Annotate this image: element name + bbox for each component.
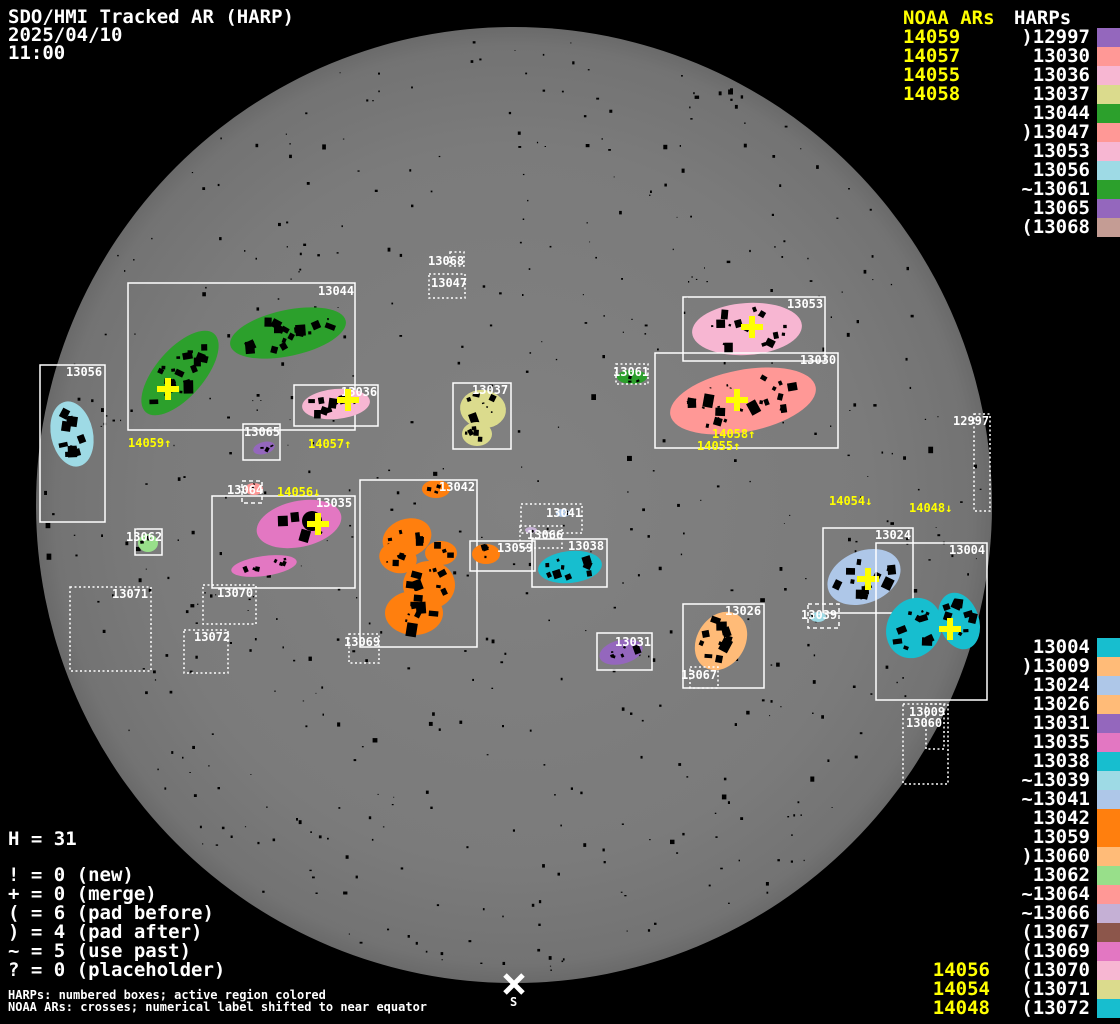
harp-color-swatch (1097, 752, 1120, 771)
harp-box-label: 13030 (800, 353, 836, 367)
harps-top-list: )1299713030130361303713044)1304713053130… (1000, 28, 1120, 237)
harp-color-swatch (1097, 85, 1120, 104)
harp-color-swatch (1097, 142, 1120, 161)
harp-box-label: 13059 (497, 541, 533, 555)
harp-color-swatch (1097, 104, 1120, 123)
harp-box-label: 13009 (909, 705, 945, 719)
harp-box-label: 13062 (126, 530, 162, 544)
harp-count: H = 31 (8, 830, 77, 849)
harp-number: (13068 (1000, 218, 1097, 237)
harp-box-label: 13069 (344, 635, 380, 649)
footnotes: HARPs: numbered boxes; active region col… (8, 989, 427, 1013)
harp-color-swatch (1097, 866, 1120, 885)
harp-list-item: (13072 (1000, 999, 1120, 1018)
legend-line-placeholder: ? = 0 (placeholder) (8, 961, 225, 980)
harp-box-label: 13041 (546, 506, 582, 520)
south-pole-label: S (510, 995, 517, 1009)
harp-box-label: 13031 (615, 635, 651, 649)
noaa-ar-number: 14048 (900, 999, 990, 1018)
harp-box-label: 13024 (875, 528, 911, 542)
harp-box-label: 13026 (725, 604, 761, 618)
harp-color-swatch (1097, 180, 1120, 199)
noaa-ar-disk-label: 14056↓ (277, 485, 320, 499)
harp-color-swatch (1097, 638, 1120, 657)
harp-box-label: 13035 (316, 496, 352, 510)
harp-color-swatch (1097, 790, 1120, 809)
harp-color-swatch (1097, 885, 1120, 904)
harp-number: (13072 (1000, 999, 1097, 1018)
harp-box-label: 13053 (787, 297, 823, 311)
harp-color-swatch (1097, 28, 1120, 47)
noaa-ar-disk-label: 14057↑ (308, 437, 351, 451)
harp-color-swatch (1097, 199, 1120, 218)
harp-tracking-screen: 1304413056130361306513037130471306813061… (0, 0, 1120, 1024)
harp-color-swatch (1097, 847, 1120, 866)
harp-color-swatch (1097, 809, 1120, 828)
noaa-ar-number: 14058 (903, 85, 960, 104)
harp-box-label: 13039 (801, 608, 837, 622)
harps-bottom-list: 13004)130091302413026130311303513038~130… (1000, 638, 1120, 1018)
harp-region-13068: 13068 (428, 252, 464, 268)
harp-box-label: 13004 (949, 543, 985, 557)
harp-color-swatch (1097, 999, 1120, 1018)
noaa-ar-disk-label: 14048↓ (909, 501, 952, 515)
harp-box-label: 13070 (217, 586, 253, 600)
noaa-ar-disk-label: 14059↑ (128, 436, 171, 450)
harp-box-label: 13042 (439, 480, 475, 494)
harp-color-swatch (1097, 66, 1120, 85)
harp-box-label: 13037 (472, 383, 508, 397)
harp-box-label: 13071 (112, 587, 148, 601)
harp-color-swatch (1097, 733, 1120, 752)
harp-color-swatch (1097, 923, 1120, 942)
harp-color-swatch (1097, 942, 1120, 961)
harp-color-swatch (1097, 980, 1120, 999)
harp-color-swatch (1097, 161, 1120, 180)
header-time: 11:00 (8, 44, 294, 62)
harp-box-label: 13064 (227, 483, 263, 497)
noaa-ar-disk-label: 14054↓ (829, 494, 872, 508)
harp-box-label: 13061 (613, 365, 649, 379)
harp-color-swatch (1097, 657, 1120, 676)
harp-box-label: 13067 (681, 668, 717, 682)
harp-box-label: 13044 (318, 284, 354, 298)
harp-color-swatch (1097, 961, 1120, 980)
harp-color-swatch (1097, 218, 1120, 237)
status-legend: ! = 0 (new) + = 0 (merge) ( = 6 (pad bef… (8, 866, 225, 980)
noaa-ars-top-list: 14059140571405514058 (903, 28, 960, 104)
harp-color-swatch (1097, 123, 1120, 142)
harp-color-swatch (1097, 695, 1120, 714)
footnote-noaa: NOAA ARs: crosses; numerical label shift… (8, 1001, 427, 1013)
harp-color-swatch (1097, 828, 1120, 847)
harp-box-label: 13072 (194, 630, 230, 644)
header: SDO/HMI Tracked AR (HARP) 2025/04/10 11:… (8, 8, 294, 62)
harp-box-label: 13068 (428, 254, 464, 268)
noaa-ar-disk-label: 14055↑ (697, 439, 740, 453)
harp-box-label: 13038 (568, 539, 604, 553)
harp-color-swatch (1097, 771, 1120, 790)
harp-box-label: 13065 (244, 425, 280, 439)
harp-box-label: 13047 (431, 276, 467, 290)
harp-color-swatch (1097, 676, 1120, 695)
noaa-ars-bottom-list: 140561405414048 (900, 961, 990, 1018)
harp-color-swatch (1097, 47, 1120, 66)
harp-color-swatch (1097, 714, 1120, 733)
harp-box-label: 13056 (66, 365, 102, 379)
harp-list-item: (13068 (1000, 218, 1120, 237)
harp-box-label: 12997 (953, 414, 989, 428)
harp-color-swatch (1097, 904, 1120, 923)
